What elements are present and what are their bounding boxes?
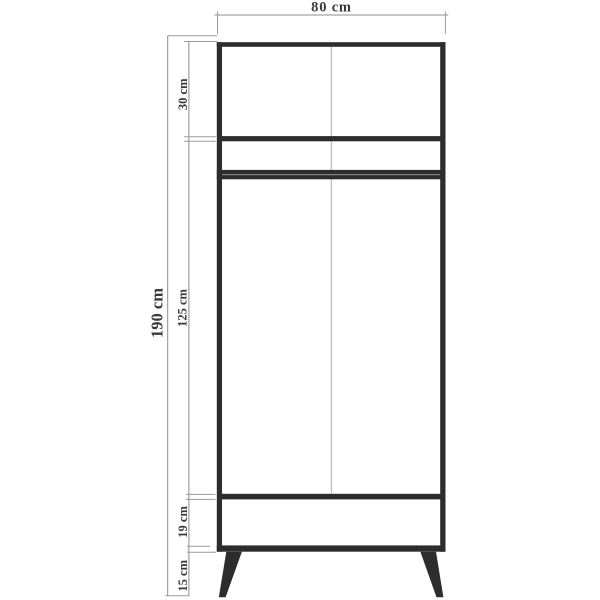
svg-text:80 cm: 80 cm <box>311 0 352 16</box>
svg-text:19 cm: 19 cm <box>176 506 190 538</box>
svg-text:30 cm: 30 cm <box>176 78 190 110</box>
svg-text:125 cm: 125 cm <box>176 288 190 326</box>
svg-text:15 cm: 15 cm <box>176 559 190 591</box>
svg-text:190 cm: 190 cm <box>148 288 167 338</box>
